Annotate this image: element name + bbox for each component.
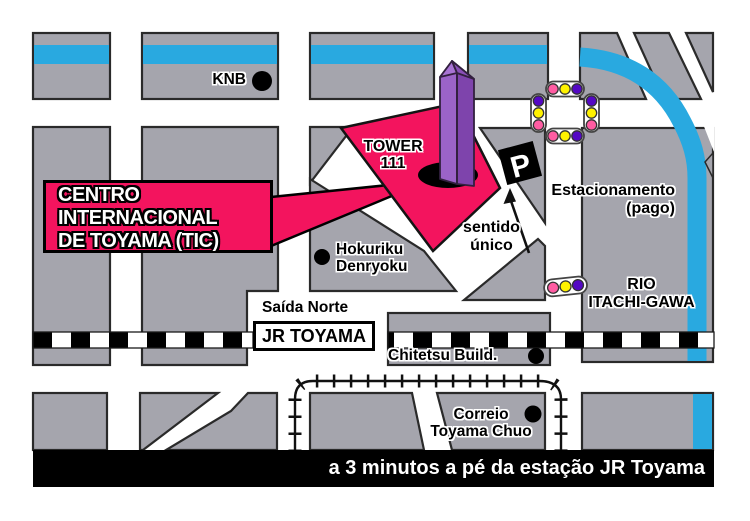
river-segment	[311, 45, 433, 64]
hokuriku-marker-dot	[314, 249, 330, 265]
river-segment	[143, 45, 277, 64]
signal-lamp-yellow	[586, 108, 596, 118]
block	[310, 33, 434, 99]
block	[33, 33, 110, 99]
callout-line2: INTERNACIONAL	[58, 207, 270, 230]
correio-toyama-chuo-label: Correio Toyama Chuo	[425, 406, 537, 440]
signal-lamp-purple	[572, 84, 582, 94]
signal-lamp-purple	[572, 131, 582, 141]
sentido-line1: sentido	[444, 219, 539, 237]
callout-line1: CENTRO	[58, 184, 270, 207]
correio-line1: Correio	[425, 406, 537, 423]
tower-face-light	[440, 61, 457, 184]
hokuriku-line1: Hokuriku	[336, 242, 408, 259]
signal-lamp-pink	[533, 120, 543, 130]
knb-label: KNB	[200, 71, 246, 89]
toyama-access-map: P KNB TOWER 111 CENTRO INTERNACIONAL DE …	[0, 0, 750, 521]
signal-lamp-pink	[548, 84, 558, 94]
tower-111-icon	[440, 61, 474, 186]
north-exit-label: Saída Norte	[262, 299, 348, 317]
river-segment	[34, 45, 109, 64]
river-segment	[469, 45, 547, 64]
signal-lamp-yellow	[533, 108, 543, 118]
signal-lamp-purple	[533, 96, 543, 106]
signal-lamp-purple	[586, 96, 596, 106]
rio-line2: ITACHI-GAWA	[579, 294, 704, 312]
tic-callout: CENTRO INTERNACIONAL DE TOYAMA (TIC)	[43, 180, 273, 253]
tower-label-line2: 111	[351, 155, 435, 172]
tower-label-line1: TOWER	[351, 138, 435, 155]
jr-toyama-station-box: JR TOYAMA	[253, 321, 375, 351]
signal-lamp-yellow	[560, 84, 570, 94]
one-way-label: sentido único	[444, 219, 539, 255]
callout-line3: DE TOYAMA (TIC)	[58, 230, 270, 253]
rio-itachi-gawa-label: RIO ITACHI-GAWA	[579, 276, 704, 311]
tower-111-label: TOWER 111	[351, 138, 435, 172]
hokuriku-denryoku-label: Hokuriku Denryoku	[336, 242, 408, 275]
signal-lamp-pink	[586, 120, 596, 130]
signal-lamp-yellow	[560, 280, 572, 292]
parking-paid-label: Estacionamento (pago)	[515, 182, 675, 218]
rio-line1: RIO	[579, 276, 704, 294]
block	[468, 33, 548, 99]
chitetsu-marker-dot	[528, 348, 544, 364]
estacionamento-line1: Estacionamento	[515, 182, 675, 200]
river-segment	[693, 394, 712, 449]
estacionamento-line2: (pago)	[515, 200, 675, 218]
block	[310, 393, 424, 450]
sentido-line2: único	[444, 237, 539, 255]
block	[33, 393, 107, 450]
signal-lamp-yellow	[560, 131, 570, 141]
correio-line2: Toyama Chuo	[425, 423, 537, 440]
hokuriku-line2: Denryoku	[336, 259, 408, 276]
knb-marker-dot	[252, 71, 272, 91]
signal-lamp-pink	[548, 131, 558, 141]
chitetsu-build-label: Chitetsu Build.	[388, 347, 497, 365]
footer-text: a 3 minutos a pé da estação JR Toyama	[33, 450, 714, 487]
signal-lamp-pink	[547, 282, 559, 294]
footer-bar: a 3 minutos a pé da estação JR Toyama	[33, 450, 714, 487]
